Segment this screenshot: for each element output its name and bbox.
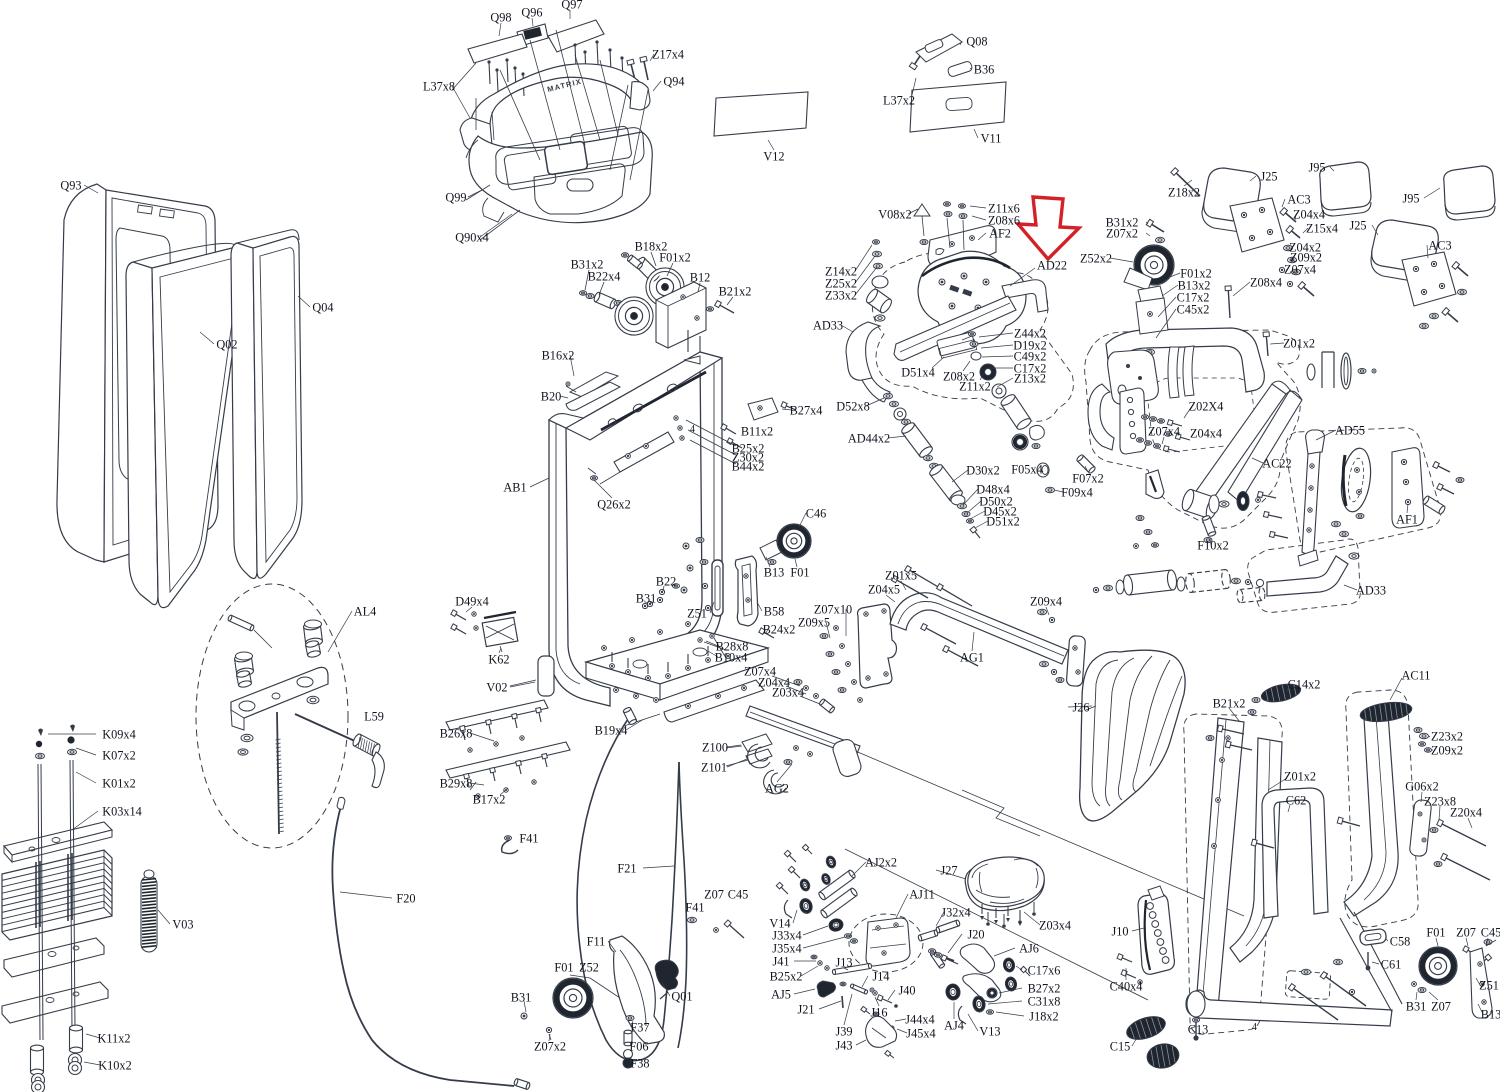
svg-text:J95: J95	[1402, 192, 1419, 206]
svg-text:Q04: Q04	[312, 301, 333, 315]
svg-text:F21: F21	[617, 862, 636, 876]
svg-text:F01: F01	[1426, 926, 1445, 940]
svg-text:Z13x2: Z13x2	[1014, 372, 1046, 386]
svg-text:B58: B58	[764, 605, 785, 619]
svg-text:AJ2x2: AJ2x2	[865, 856, 897, 870]
svg-text:L37x2: L37x2	[883, 94, 915, 108]
svg-text:C31x8: C31x8	[1028, 995, 1061, 1009]
svg-text:F01x2: F01x2	[659, 251, 690, 265]
svg-text:J35x4: J35x4	[772, 942, 801, 956]
svg-text:F37: F37	[630, 1021, 649, 1035]
svg-text:B22x4: B22x4	[588, 270, 621, 284]
svg-text:J27: J27	[940, 864, 957, 878]
svg-text:AC3: AC3	[1428, 239, 1451, 253]
svg-text:J39: J39	[835, 1025, 852, 1039]
svg-text:AJ6: AJ6	[1019, 942, 1039, 956]
svg-text:F06: F06	[629, 1040, 648, 1054]
svg-text:F07x2: F07x2	[1072, 472, 1103, 486]
svg-text:J13: J13	[835, 956, 852, 970]
svg-text:Z07x2: Z07x2	[1106, 227, 1138, 241]
svg-text:AD22: AD22	[1037, 259, 1067, 273]
svg-text:Q99: Q99	[445, 191, 466, 205]
svg-text:C62: C62	[1286, 794, 1307, 808]
svg-text:Z01x2: Z01x2	[1283, 337, 1315, 351]
svg-text:J95: J95	[1308, 161, 1325, 175]
svg-text:J18x2: J18x2	[1029, 1010, 1058, 1024]
svg-text:AL4: AL4	[354, 605, 377, 619]
svg-text:AF1: AF1	[1396, 513, 1418, 527]
svg-text:C46: C46	[806, 507, 827, 521]
svg-text:AG2: AG2	[765, 782, 789, 796]
svg-text:D52x8: D52x8	[836, 400, 869, 414]
svg-text:C17x6: C17x6	[1028, 964, 1061, 978]
svg-text:J14: J14	[872, 970, 889, 984]
svg-text:Z17x4: Z17x4	[652, 48, 684, 62]
svg-text:F09x4: F09x4	[1061, 486, 1092, 500]
svg-text:Z07: Z07	[704, 888, 724, 902]
svg-text:C13: C13	[1188, 1023, 1209, 1037]
svg-text:Z03x4: Z03x4	[1039, 919, 1071, 933]
svg-text:B12: B12	[690, 271, 711, 285]
svg-text:Z100: Z100	[702, 741, 728, 755]
svg-text:J45x4: J45x4	[906, 1027, 935, 1041]
svg-text:Z20x4: Z20x4	[1450, 806, 1482, 820]
svg-text:L59: L59	[364, 710, 384, 724]
svg-text:B20: B20	[541, 390, 562, 404]
svg-text:L37x8: L37x8	[423, 80, 455, 94]
svg-text:J20: J20	[967, 928, 984, 942]
svg-text:J43: J43	[835, 1039, 852, 1053]
svg-text:F20: F20	[396, 892, 415, 906]
svg-text:Z11x2: Z11x2	[959, 380, 991, 394]
svg-text:B11x2: B11x2	[741, 425, 773, 439]
svg-text:Z08x4: Z08x4	[1250, 276, 1282, 290]
svg-text:K09x4: K09x4	[102, 728, 135, 742]
svg-text:B29x8: B29x8	[440, 777, 473, 791]
svg-text:D51x2: D51x2	[986, 515, 1019, 529]
svg-text:D30x2: D30x2	[966, 464, 999, 478]
svg-text:B27x2: B27x2	[1028, 982, 1061, 996]
svg-text:Z09x5: Z09x5	[798, 616, 830, 630]
svg-text:AD33: AD33	[813, 319, 843, 333]
svg-text:F01: F01	[790, 566, 809, 580]
svg-text:Z07x4: Z07x4	[1284, 263, 1316, 277]
svg-text:Z33x2: Z33x2	[825, 289, 857, 303]
svg-text:C14x2: C14x2	[1288, 678, 1321, 692]
svg-text:B19x4: B19x4	[595, 724, 628, 738]
svg-text:4: 4	[690, 424, 695, 435]
svg-text:J10: J10	[1111, 925, 1128, 939]
svg-text:Z07x4: Z07x4	[1148, 425, 1180, 439]
svg-text:Z18x2: Z18x2	[1168, 186, 1200, 200]
svg-text:C45: C45	[1481, 926, 1500, 940]
svg-text:Z51: Z51	[1479, 979, 1499, 993]
svg-text:Q94: Q94	[663, 75, 684, 89]
svg-text:V13: V13	[979, 1025, 1000, 1039]
svg-text:J16: J16	[870, 1006, 887, 1020]
svg-text:Z23x2: Z23x2	[1431, 730, 1463, 744]
svg-text:C58: C58	[1390, 935, 1411, 949]
svg-text:Z04x5: Z04x5	[868, 583, 900, 597]
svg-text:V12: V12	[763, 150, 784, 164]
svg-text:B16x2: B16x2	[542, 349, 575, 363]
svg-text:Z03x4: Z03x4	[772, 686, 804, 700]
svg-text:Q26x2: Q26x2	[597, 498, 630, 512]
svg-text:C45: C45	[728, 888, 749, 902]
svg-text:AD55: AD55	[1335, 424, 1365, 438]
svg-text:K07x2: K07x2	[102, 749, 135, 763]
svg-text:Z08x6: Z08x6	[988, 214, 1020, 228]
svg-text:F11: F11	[587, 935, 606, 949]
svg-text:AB1: AB1	[503, 481, 526, 495]
svg-text:F41: F41	[519, 832, 538, 846]
svg-text:V02: V02	[486, 681, 507, 695]
svg-text:Z09x2: Z09x2	[1431, 744, 1463, 758]
svg-text:Z04x4: Z04x4	[1293, 208, 1325, 222]
svg-text:K10x2: K10x2	[98, 1059, 131, 1073]
svg-text:J33x4: J33x4	[772, 929, 801, 943]
svg-text:B44x2: B44x2	[732, 460, 765, 474]
svg-text:AJ4: AJ4	[944, 1019, 964, 1033]
svg-text:C40x4: C40x4	[1110, 980, 1143, 994]
svg-text:C61: C61	[1381, 958, 1402, 972]
svg-text:C15: C15	[1110, 1040, 1131, 1054]
svg-text:Z52x2: Z52x2	[1080, 252, 1112, 266]
svg-text:V08x2: V08x2	[878, 208, 911, 222]
svg-text:F01: F01	[554, 961, 573, 975]
svg-text:Q93: Q93	[60, 179, 81, 193]
svg-text:Z07: Z07	[1431, 1000, 1451, 1014]
svg-text:B25x2: B25x2	[770, 970, 803, 984]
svg-text:Q01: Q01	[671, 990, 692, 1004]
svg-text:B17x2: B17x2	[473, 793, 506, 807]
svg-text:Z52: Z52	[579, 961, 599, 975]
svg-text:Q90x4: Q90x4	[455, 231, 488, 245]
svg-text:Z07: Z07	[1456, 926, 1476, 940]
svg-text:Z02X4: Z02X4	[1189, 400, 1224, 414]
svg-text:B21x2: B21x2	[719, 285, 752, 299]
svg-text:Q02: Q02	[216, 338, 237, 352]
svg-text:B22: B22	[656, 575, 677, 589]
svg-text:B31: B31	[1406, 1000, 1427, 1014]
svg-text:F05x4: F05x4	[1011, 463, 1042, 477]
svg-text:J26: J26	[1072, 701, 1089, 715]
svg-text:AJ11: AJ11	[909, 888, 935, 902]
svg-text:Q97: Q97	[561, 0, 582, 12]
svg-text:V03: V03	[172, 918, 193, 932]
svg-text:D51x4: D51x4	[901, 366, 934, 380]
svg-text:J25: J25	[1260, 170, 1277, 184]
svg-text:AC3: AC3	[1287, 193, 1310, 207]
svg-text:K62: K62	[488, 653, 509, 667]
svg-text:J40: J40	[898, 984, 915, 998]
svg-text:V11: V11	[981, 132, 1002, 146]
svg-text:B21x2: B21x2	[1213, 697, 1246, 711]
svg-text:B10x4: B10x4	[715, 651, 748, 665]
svg-text:K11x2: K11x2	[97, 1032, 130, 1046]
svg-text:AJ5: AJ5	[771, 988, 791, 1002]
svg-text:Z101: Z101	[701, 761, 727, 775]
svg-text:Z15x4: Z15x4	[1306, 222, 1338, 236]
svg-text:B31: B31	[511, 991, 532, 1005]
svg-text:B31: B31	[636, 592, 657, 606]
svg-text:Q96: Q96	[521, 6, 542, 20]
svg-text:Q98: Q98	[490, 11, 511, 25]
svg-text:B13: B13	[764, 566, 785, 580]
svg-text:B26x8: B26x8	[440, 727, 473, 741]
svg-text:B24x2: B24x2	[763, 623, 796, 637]
svg-text:AG1: AG1	[960, 651, 984, 665]
svg-text:C45x2: C45x2	[1177, 303, 1210, 317]
svg-text:Z07x2: Z07x2	[534, 1040, 566, 1054]
svg-text:F38: F38	[630, 1057, 649, 1071]
svg-text:B13: B13	[1481, 1008, 1500, 1022]
svg-text:G06x2: G06x2	[1405, 780, 1438, 794]
svg-text:B36: B36	[974, 63, 995, 77]
svg-text:K03x14: K03x14	[102, 805, 142, 819]
svg-text:J32x4: J32x4	[941, 906, 970, 920]
svg-text:Z01x2: Z01x2	[1284, 770, 1316, 784]
svg-text:AD33: AD33	[1356, 584, 1386, 598]
svg-text:B27x4: B27x4	[790, 404, 823, 418]
svg-text:D49x4: D49x4	[455, 595, 488, 609]
svg-text:K01x2: K01x2	[102, 777, 135, 791]
svg-text:AC11: AC11	[1402, 669, 1431, 683]
svg-text:AD44x2: AD44x2	[848, 432, 890, 446]
svg-text:Z51: Z51	[687, 607, 707, 621]
svg-text:AF2: AF2	[989, 227, 1011, 241]
svg-text:AC22: AC22	[1262, 457, 1291, 471]
svg-text:F10x2: F10x2	[1197, 539, 1228, 553]
svg-text:Z09x4: Z09x4	[1030, 595, 1062, 609]
svg-text:J44x4: J44x4	[905, 1013, 934, 1027]
svg-text:F41: F41	[685, 901, 704, 915]
svg-text:Z01x5: Z01x5	[885, 569, 917, 583]
svg-text:Z04x4: Z04x4	[1190, 427, 1222, 441]
svg-text:Q08: Q08	[966, 35, 987, 49]
svg-text:4: 4	[1252, 1022, 1257, 1033]
svg-text:J25: J25	[1349, 219, 1366, 233]
svg-text:J21: J21	[797, 1003, 814, 1017]
svg-text:J41: J41	[772, 955, 789, 969]
svg-text:Z07x10: Z07x10	[814, 603, 852, 617]
